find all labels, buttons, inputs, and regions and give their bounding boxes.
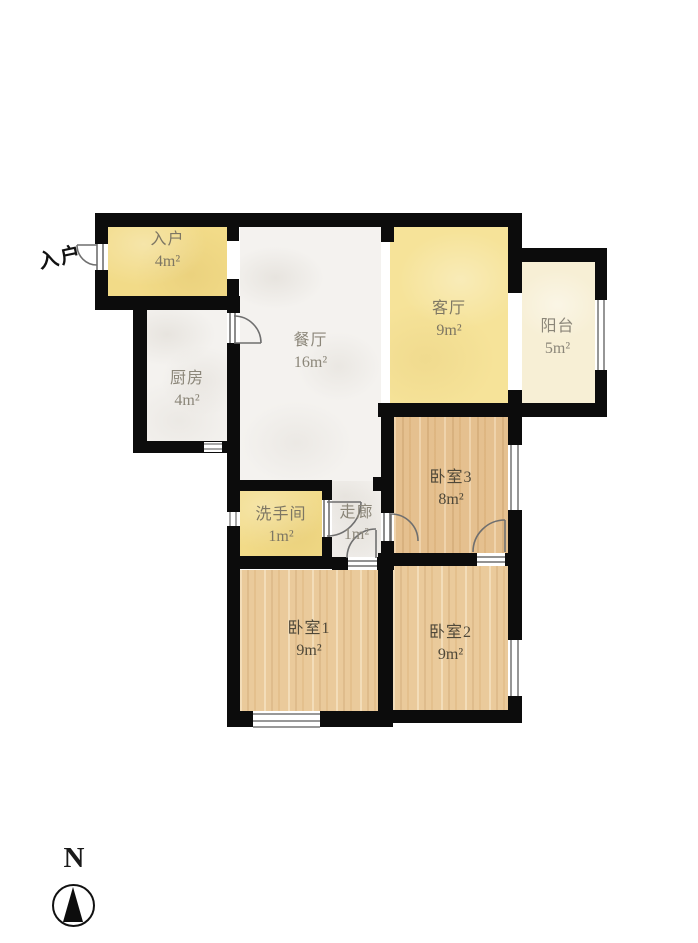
room-name: 客厅 [390,298,508,320]
room-area: 9m² [393,644,508,666]
room-name: 洗手间 [240,504,322,526]
room-area: 8m² [394,489,508,511]
room-name: 餐厅 [240,330,381,352]
bedroom2-door-icon [473,520,505,566]
room-label-bedroom2: 卧室2 9m² [393,622,508,665]
room-area: 9m² [240,640,378,662]
kitchen-window-icon [204,442,222,452]
bathroom-window-icon [227,512,240,526]
compass-circle-icon [52,884,95,927]
room-label-living: 客厅 9m² [390,298,508,341]
compass: N [40,842,110,875]
room-label-entry: 入户 4m² [108,229,227,272]
room-name: 入户 [108,229,227,251]
floor-plan-canvas: 入户 4m² 厨房 4m² 餐厅 16m² 客厅 9m² 阳台 5m² 卧室3 … [0,0,698,943]
room-name: 走廊 [332,502,381,524]
compass-north-label: N [40,842,108,875]
room-label-bedroom3: 卧室3 8m² [394,467,508,510]
room-name: 卧室3 [394,467,508,489]
room-name: 阳台 [520,316,595,338]
room-label-dining: 餐厅 16m² [240,330,381,373]
room-area: 4m² [108,251,227,273]
doors-windows-layer [0,0,698,943]
room-area: 1m² [240,526,322,548]
compass-needle-icon [63,887,83,922]
room-label-kitchen: 厨房 4m² [147,368,227,411]
room-label-bathroom: 洗手间 1m² [240,504,322,547]
room-area: 1m² [332,524,381,546]
balcony-window-icon [595,300,607,370]
room-label-balcony: 阳台 5m² [520,316,595,359]
room-label-bedroom1: 卧室1 9m² [240,618,378,661]
room-name: 厨房 [147,368,227,390]
bedroom3-door-icon [381,513,418,541]
bedroom3-window-icon [508,445,522,510]
room-area: 5m² [520,338,595,360]
room-area: 9m² [390,320,508,342]
room-name: 卧室2 [393,622,508,644]
bedroom2-window-icon [508,640,522,696]
room-name: 卧室1 [240,618,378,640]
bedroom1-window-icon [253,711,320,728]
room-label-corridor: 走廊 1m² [332,502,381,545]
room-area: 4m² [147,390,227,412]
room-area: 16m² [240,352,381,374]
